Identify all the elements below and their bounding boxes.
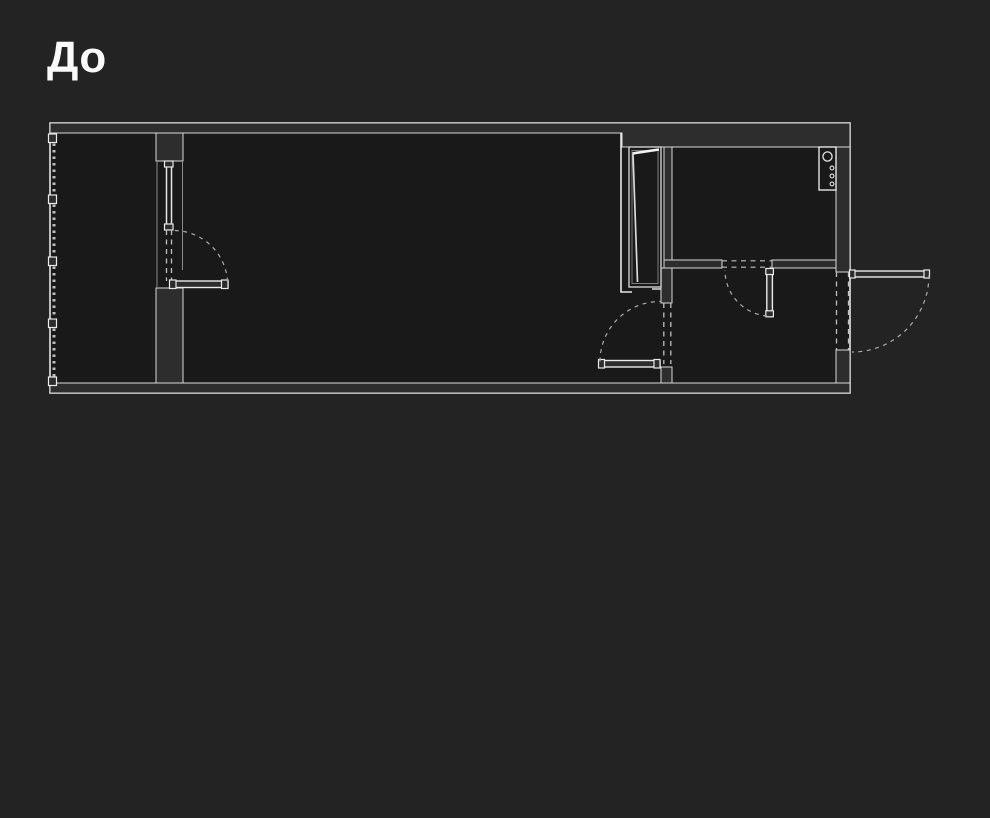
bathroom-door-leaf — [767, 269, 773, 317]
right-wall-lower — [836, 350, 850, 383]
leaf-cap — [170, 280, 177, 289]
balcony-door-leaf — [170, 281, 228, 288]
hallway-left-wall-upper — [661, 268, 672, 303]
bathroom-left-wall — [664, 147, 672, 260]
water-heater-fixture — [819, 147, 836, 190]
mullion — [49, 319, 57, 328]
hallway-top-wall-left — [664, 260, 722, 268]
leaf-cap — [599, 360, 605, 369]
right-wall-upper — [836, 147, 850, 272]
window-cap-bottom — [165, 224, 174, 230]
window-cap-top — [165, 161, 174, 167]
leaf-cap — [654, 360, 660, 369]
balcony-pier-top — [156, 133, 183, 161]
entrance-door-leaf — [850, 271, 929, 277]
mullion — [49, 195, 57, 204]
hallway-top-wall-right — [772, 260, 836, 268]
leaf-cap — [850, 270, 856, 278]
hallway-left-wall-lower — [661, 367, 672, 383]
mullion — [49, 257, 57, 266]
mullion — [49, 134, 57, 143]
entrance-door-swing-arc — [852, 275, 929, 352]
mullion — [49, 377, 57, 386]
balcony-pier-bottom — [156, 288, 183, 383]
floor-plan — [0, 0, 990, 818]
room-door-leaf — [599, 361, 660, 368]
leaf-cap — [766, 269, 774, 275]
bottom-wall — [50, 383, 850, 393]
